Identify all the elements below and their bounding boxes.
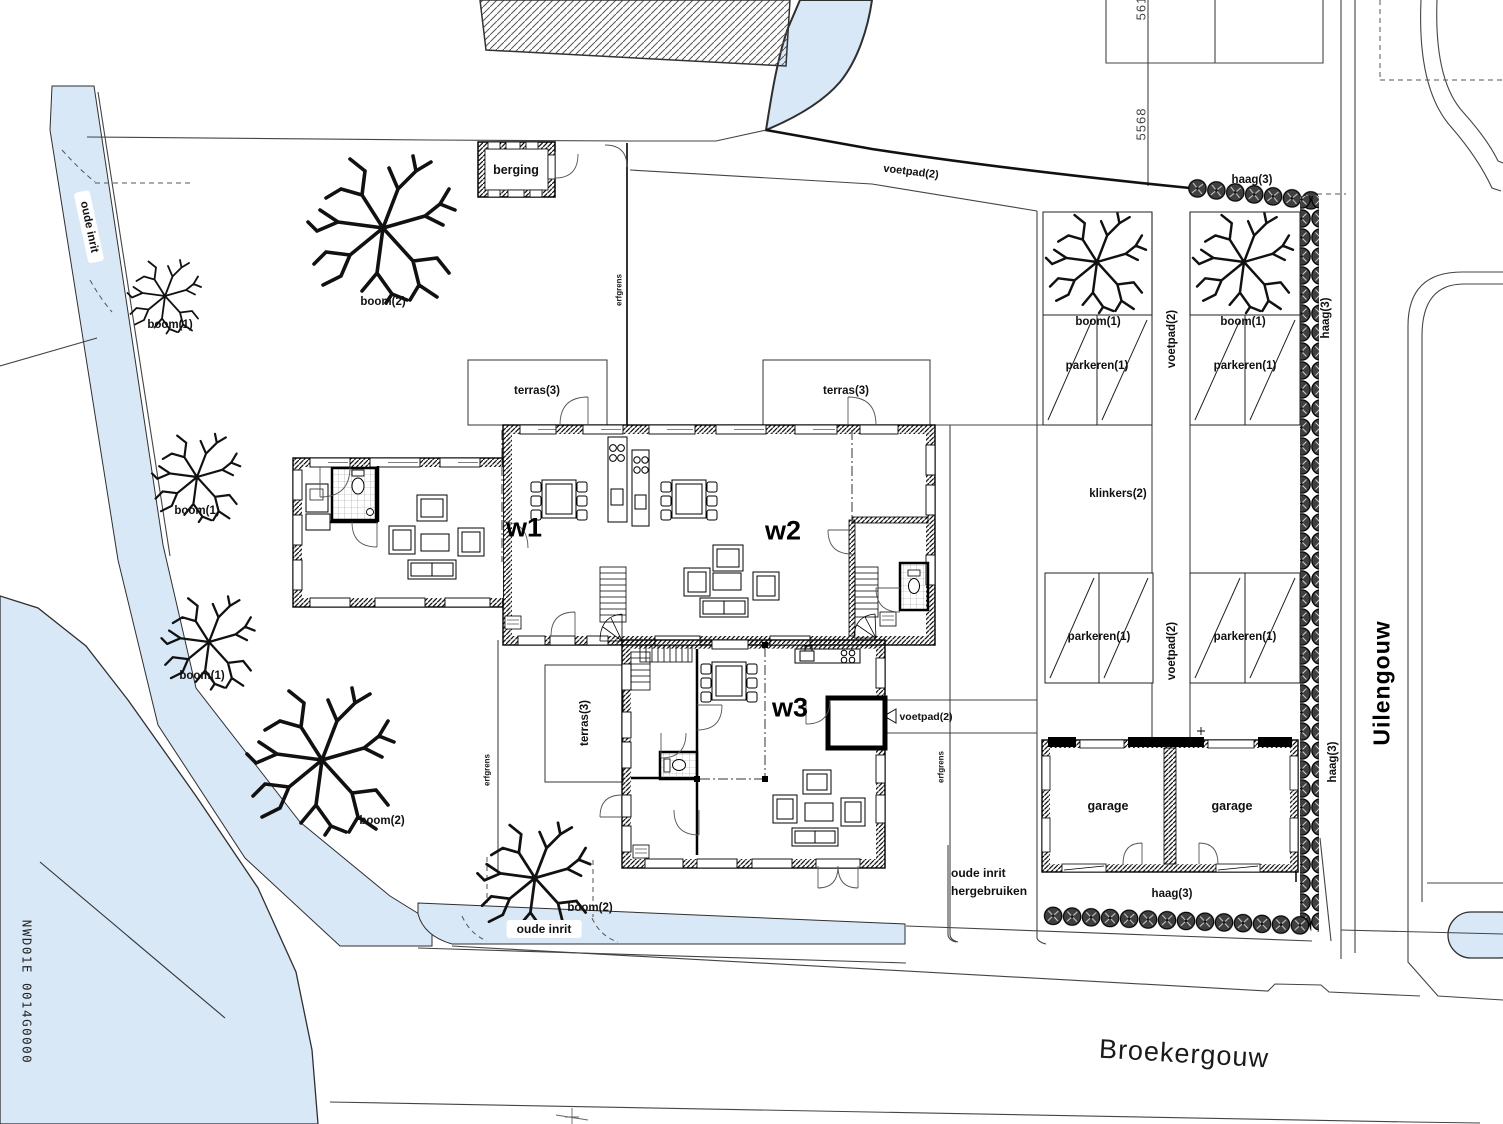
boom1-label-c: boom(1): [179, 670, 224, 682]
neighbor-building: [480, 0, 790, 66]
parkeren-label-1b: parkeren(1): [1214, 360, 1277, 372]
garage-label-1: garage: [1088, 799, 1129, 813]
erfgrens-label-1: erfgrens: [615, 274, 624, 306]
site-plan: oude inrit boom(1) boom(2) boom(1) boom(…: [0, 0, 1503, 1124]
street-label-uilengouw: Uilengouw: [1369, 620, 1396, 745]
haag-right-label-1: haag(3): [1320, 298, 1332, 339]
boom2-label-bottom: boom(2): [567, 902, 612, 914]
water-pond-right: [1448, 912, 1503, 958]
parkeren-label-1a: parkeren(1): [1066, 360, 1129, 372]
site-plan-drawing: [0, 0, 1503, 1124]
boom1-label-a: boom(1): [147, 319, 192, 331]
tree-icon: [308, 156, 455, 303]
cadastral-reference-label: NWD01E 0014G0000: [20, 920, 35, 1064]
hergebruiken-line2: hergebruiken: [951, 882, 1027, 900]
house-label-w1: w1: [506, 513, 542, 544]
voetpad-w3-label: voetpad(2): [899, 711, 952, 723]
terras-label-w1: terras(3): [514, 385, 560, 397]
boom1-label-r1: boom(1): [1075, 316, 1120, 328]
boom1-label-r2: boom(1): [1220, 316, 1265, 328]
terras-label-w2: terras(3): [823, 385, 869, 397]
tree-icon: [1046, 213, 1146, 313]
boom2-label-top: boom(2): [360, 296, 405, 308]
erfgrens-label-2: erfgrens: [483, 754, 492, 786]
oude-inrit-hergebruiken-label: oude inrit hergebruiken: [951, 864, 1027, 900]
voetpad-vertical-label-1: voetpad(2): [1166, 310, 1178, 368]
haag-top-label: haag(3): [1232, 174, 1273, 186]
boundary-thick: [766, 130, 1190, 188]
water-ditch-bottom: [418, 903, 905, 944]
terras-label-w3: terras(3): [579, 700, 591, 746]
oude-inrit-bottom-label: oude inrit: [507, 920, 582, 938]
house-label-w3: w3: [772, 693, 808, 724]
house-w1-w2: [293, 397, 935, 645]
garage-building: [1042, 727, 1298, 882]
boom2-label-left: boom(2): [359, 815, 404, 827]
parcel-number-middle: 5568: [1134, 108, 1149, 141]
klinkers-label: klinkers(2): [1089, 488, 1147, 500]
garage-label-2: garage: [1212, 799, 1253, 813]
parcel-number-top: 561: [1134, 0, 1149, 20]
parkeren-label-2b: parkeren(1): [1214, 631, 1277, 643]
boom1-label-b: boom(1): [174, 505, 219, 517]
haag-right-label-2: haag(3): [1327, 742, 1339, 783]
tree-icon: [1193, 213, 1293, 313]
berging-label: berging: [493, 163, 539, 177]
erfgrens-label-3: erfgrens: [937, 751, 946, 783]
tree-icon: [247, 688, 394, 835]
hergebruiken-line1: oude inrit: [951, 864, 1027, 882]
house-label-w2: w2: [765, 516, 801, 547]
haag-bottom-label: haag(3): [1152, 888, 1193, 900]
house-w3: [600, 640, 885, 888]
voetpad-vertical-label-2: voetpad(2): [1166, 622, 1178, 680]
parkeren-label-2a: parkeren(1): [1068, 631, 1131, 643]
